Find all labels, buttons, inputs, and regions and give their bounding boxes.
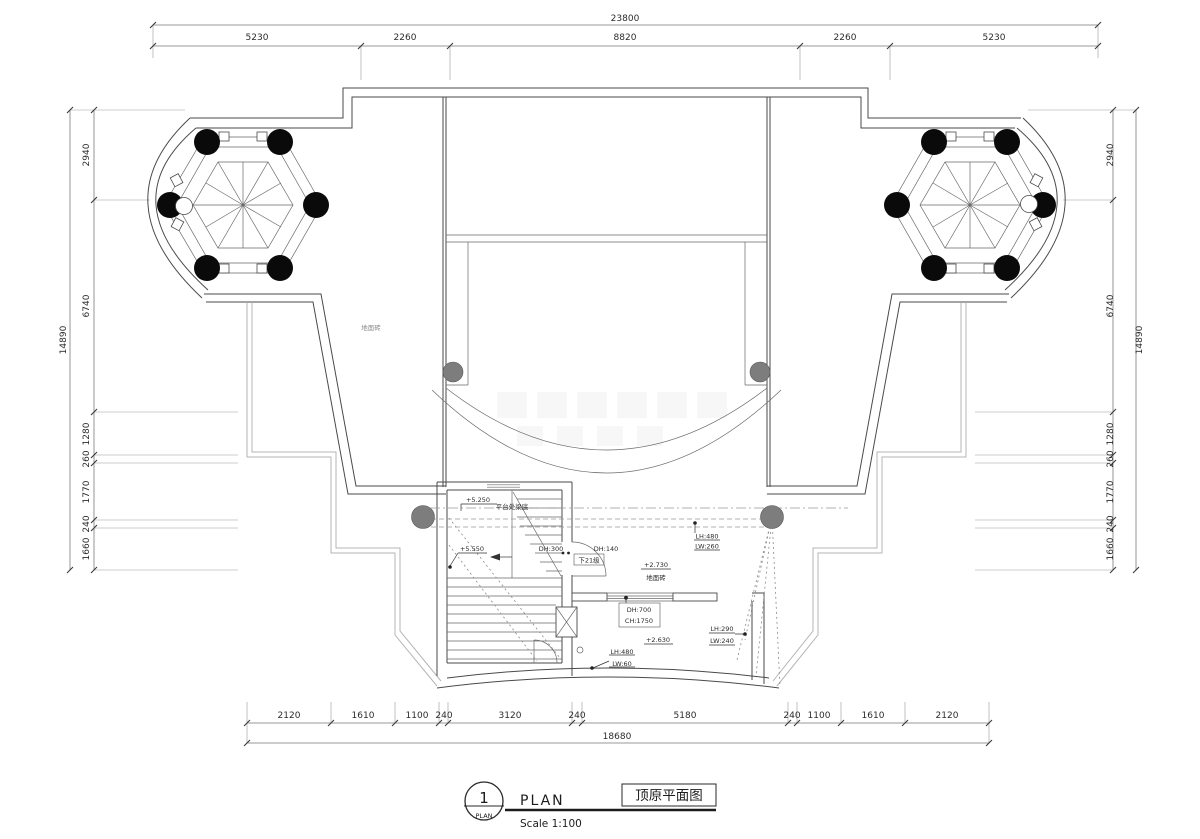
beam-size-label: LW:260 bbox=[695, 543, 719, 551]
dim-right-seg: 260 bbox=[1106, 450, 1116, 467]
gray-column bbox=[750, 362, 770, 382]
beam-note-label: 平台处梁底 bbox=[496, 502, 529, 511]
column bbox=[921, 129, 947, 155]
stair-direction-arrow bbox=[490, 554, 500, 561]
column bbox=[267, 255, 293, 281]
gray-column bbox=[412, 506, 435, 529]
right-tower-roof-rays bbox=[920, 162, 1020, 248]
left-tower-roof-rays bbox=[193, 162, 293, 248]
stairs bbox=[447, 490, 562, 661]
dim-bottom-seg: 240 bbox=[435, 711, 452, 721]
dim-right-seg: 240 bbox=[1106, 515, 1116, 532]
window-height-label: DH:700 bbox=[627, 606, 652, 614]
window-wall bbox=[572, 593, 717, 601]
window-height-label: CH:1750 bbox=[625, 617, 653, 625]
drain-circle bbox=[176, 198, 193, 215]
column bbox=[884, 192, 910, 218]
dim-right-seg: 2940 bbox=[1106, 143, 1116, 166]
dim-bottom-seg: 2120 bbox=[278, 711, 301, 721]
lower-block bbox=[437, 482, 779, 688]
level-label: +2.630 bbox=[646, 636, 670, 644]
beam-size-label: LW:240 bbox=[710, 637, 734, 645]
beams-and-levels bbox=[423, 508, 848, 687]
dim-top-seg: 5230 bbox=[246, 33, 269, 43]
plan-number-sub: PLAN bbox=[476, 812, 493, 820]
level-label: +5.250 bbox=[466, 496, 490, 504]
right-tower bbox=[884, 129, 1056, 281]
dim-right-seg: 6740 bbox=[1106, 294, 1116, 317]
door-arc bbox=[534, 640, 557, 663]
dim-left-seg: 1280 bbox=[82, 422, 92, 445]
dim-top-seg: 5230 bbox=[983, 33, 1006, 43]
plan-title-en: PLAN bbox=[520, 793, 565, 809]
column bbox=[303, 192, 329, 218]
dim-right-seg: 1770 bbox=[1106, 480, 1116, 503]
column bbox=[267, 129, 293, 155]
left-tower bbox=[157, 129, 329, 281]
gray-column bbox=[761, 506, 784, 529]
plan-drawing: 23800 5230 2260 8820 2260 5230 14890 294… bbox=[0, 0, 1200, 839]
bottom-dimension-chain: 18680 2120 1610 1100 240 3120 240 5180 2… bbox=[244, 702, 992, 746]
column bbox=[921, 255, 947, 281]
dim-left-total: 14890 bbox=[59, 325, 69, 354]
dim-bottom-seg: 1610 bbox=[862, 711, 885, 721]
column bbox=[994, 255, 1020, 281]
right-dimension-chain: 14890 2940 6740 1280 260 1770 240 1660 bbox=[975, 107, 1145, 573]
column bbox=[194, 255, 220, 281]
dim-top-seg: 8820 bbox=[614, 33, 637, 43]
floor-plan-sheet: 23800 5230 2260 8820 2260 5230 14890 294… bbox=[0, 0, 1200, 839]
beam-size-label: LH:290 bbox=[710, 625, 733, 633]
dim-bottom-seg: 2120 bbox=[936, 711, 959, 721]
dim-top-seg: 2260 bbox=[394, 33, 417, 43]
column bbox=[194, 129, 220, 155]
top-dimension-chain: 23800 5230 2260 8820 2260 5230 bbox=[150, 14, 1101, 80]
annotations: 地面砖 +5.250 平台处梁底 +5.550 DH:300 DH:140 下2… bbox=[361, 323, 747, 670]
dim-left-seg: 240 bbox=[82, 515, 92, 532]
left-dimension-chain: 14890 2940 6740 1280 260 1770 240 1660 bbox=[59, 107, 238, 573]
dim-bottom-seg: 240 bbox=[568, 711, 585, 721]
dim-top-total: 23800 bbox=[611, 14, 640, 24]
drain-circle bbox=[1021, 196, 1038, 213]
door-height-label: DH:300 bbox=[539, 545, 564, 553]
beam-size-label: LH:480 bbox=[695, 533, 718, 541]
dim-right-seg: 1660 bbox=[1106, 537, 1116, 560]
dim-right-seg: 1280 bbox=[1106, 422, 1116, 445]
plan-scale: Scale 1:100 bbox=[520, 818, 582, 830]
title-block: 1 PLAN PLAN Scale 1:100 顶原平面图 bbox=[464, 782, 716, 830]
dim-left-seg: 260 bbox=[82, 450, 92, 467]
dim-bottom-seg: 1100 bbox=[406, 711, 429, 721]
watermark bbox=[497, 392, 727, 446]
dim-bottom-seg: 5180 bbox=[674, 711, 697, 721]
level-label: +5.550 bbox=[460, 545, 484, 553]
dim-bottom-seg: 240 bbox=[783, 711, 800, 721]
dim-left-seg: 1660 bbox=[82, 537, 92, 560]
level-label: +2.730 bbox=[644, 561, 668, 569]
gray-column bbox=[443, 362, 463, 382]
floor-tile-label: 地面砖 bbox=[646, 573, 666, 582]
column bbox=[994, 129, 1020, 155]
steps-down-label: 下21级 bbox=[578, 556, 600, 565]
dim-right-total: 14890 bbox=[1135, 325, 1145, 354]
dim-left-seg: 6740 bbox=[82, 294, 92, 317]
dim-left-seg: 2940 bbox=[82, 143, 92, 166]
dim-bottom-seg: 1610 bbox=[352, 711, 375, 721]
dim-left-seg: 1770 bbox=[82, 480, 92, 503]
dim-bottom-seg: 3120 bbox=[499, 711, 522, 721]
dim-top-seg: 2260 bbox=[834, 33, 857, 43]
plan-title-cn: 顶原平面图 bbox=[635, 788, 703, 804]
plan-number: 1 bbox=[479, 789, 489, 807]
dim-bottom-total: 18680 bbox=[603, 732, 632, 742]
door-height-label: DH:140 bbox=[594, 545, 619, 553]
floor-tile-label: 地面砖 bbox=[361, 323, 381, 332]
dim-bottom-seg: 1100 bbox=[808, 711, 831, 721]
